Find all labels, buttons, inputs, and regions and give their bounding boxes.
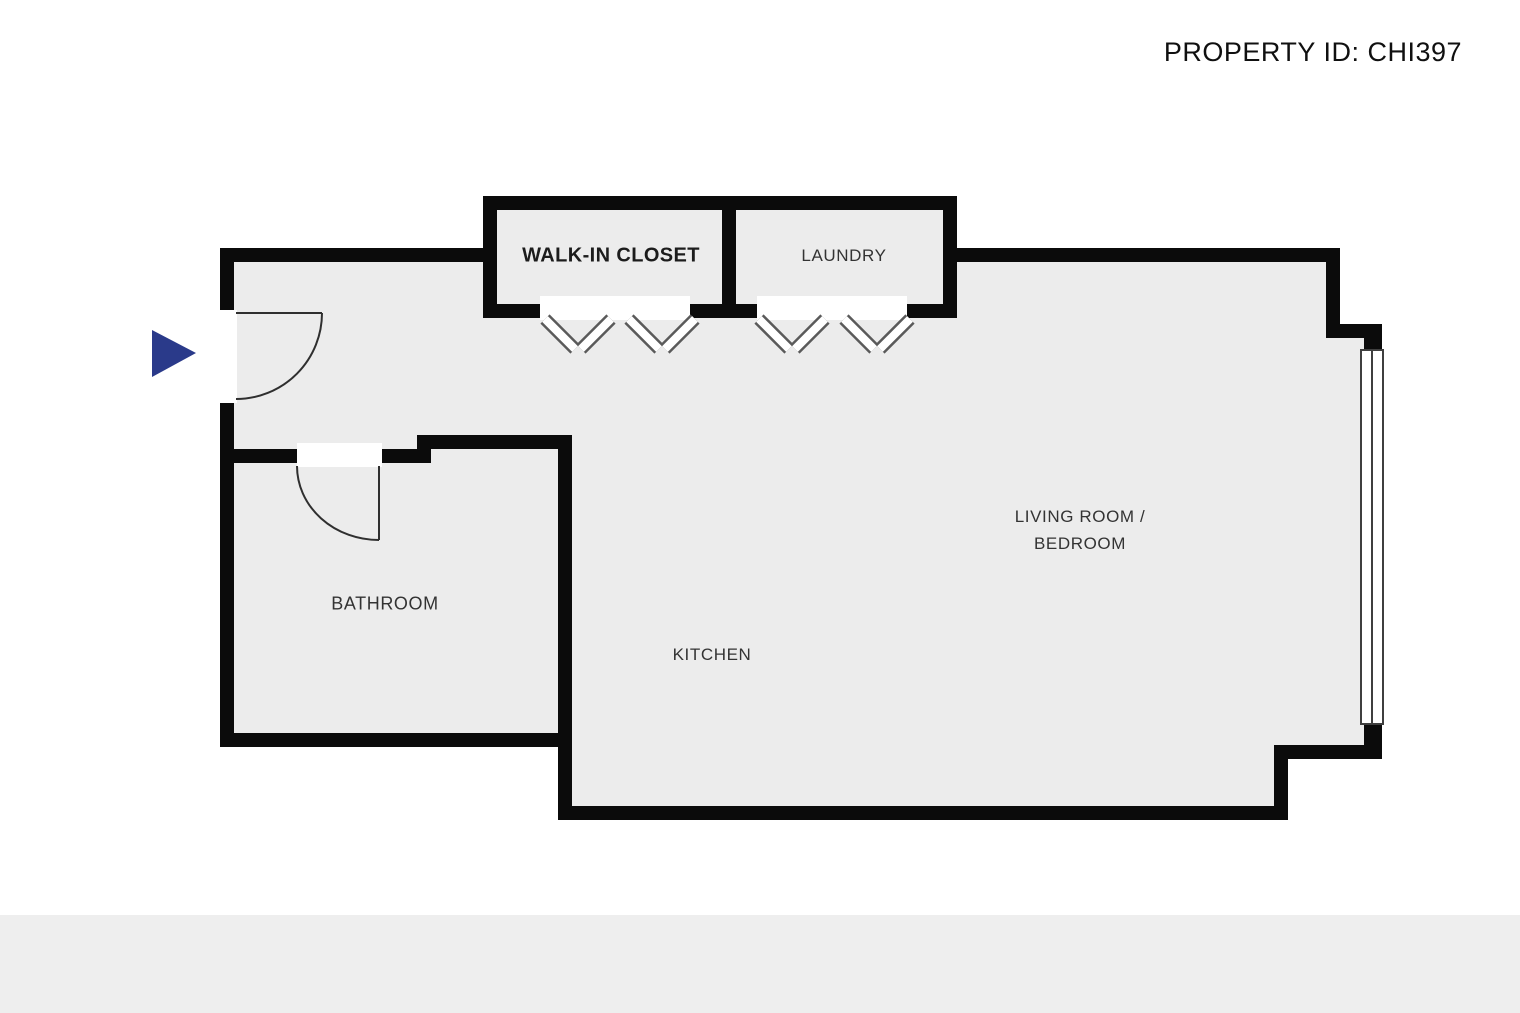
wall-segment bbox=[220, 248, 497, 262]
bathroom-door-opening bbox=[297, 443, 382, 467]
wall-segment bbox=[483, 196, 957, 210]
wall-segment bbox=[1274, 745, 1382, 759]
wall-segment bbox=[955, 248, 1340, 262]
wall-segment bbox=[483, 196, 497, 318]
room-label-laundry: LAUNDRY bbox=[801, 246, 886, 266]
wall-segment bbox=[483, 304, 540, 318]
wall-segment bbox=[382, 449, 431, 463]
wall-segment bbox=[722, 196, 736, 318]
wall-segment bbox=[558, 806, 1288, 820]
wall-segment bbox=[222, 733, 572, 747]
wall-segment bbox=[907, 304, 957, 318]
room-label-kitchen: KITCHEN bbox=[673, 645, 752, 665]
wall-segment bbox=[943, 196, 957, 318]
room-label-living-room-bedroom: LIVING ROOM / BEDROOM bbox=[1015, 503, 1146, 557]
laundry-door-opening bbox=[757, 296, 907, 320]
room-label-walk-in-closet: WALK-IN CLOSET bbox=[522, 245, 700, 268]
room-label-living-line1: LIVING ROOM / bbox=[1015, 503, 1146, 530]
room-label-bathroom: BATHROOM bbox=[331, 594, 438, 615]
window-symbol bbox=[1361, 350, 1383, 724]
wall-segment bbox=[558, 435, 572, 820]
wall-segment bbox=[222, 449, 297, 463]
footer-bar: MAIN ENTRANCE BLUEGROUND bbox=[0, 915, 1520, 1013]
room-label-living-line2: BEDROOM bbox=[1015, 530, 1146, 557]
wall-segment bbox=[690, 304, 757, 318]
floor-area bbox=[227, 203, 1368, 813]
entrance-arrow-icon bbox=[152, 330, 196, 377]
entry-door-opening bbox=[217, 310, 237, 403]
closet-door-opening bbox=[540, 296, 690, 320]
floor-plan-drawing bbox=[0, 0, 1520, 1013]
wall-segment bbox=[417, 435, 572, 449]
floorplan-page: PROPERTY ID: CHI397 bbox=[0, 0, 1520, 1013]
wall-segment bbox=[1326, 324, 1382, 338]
